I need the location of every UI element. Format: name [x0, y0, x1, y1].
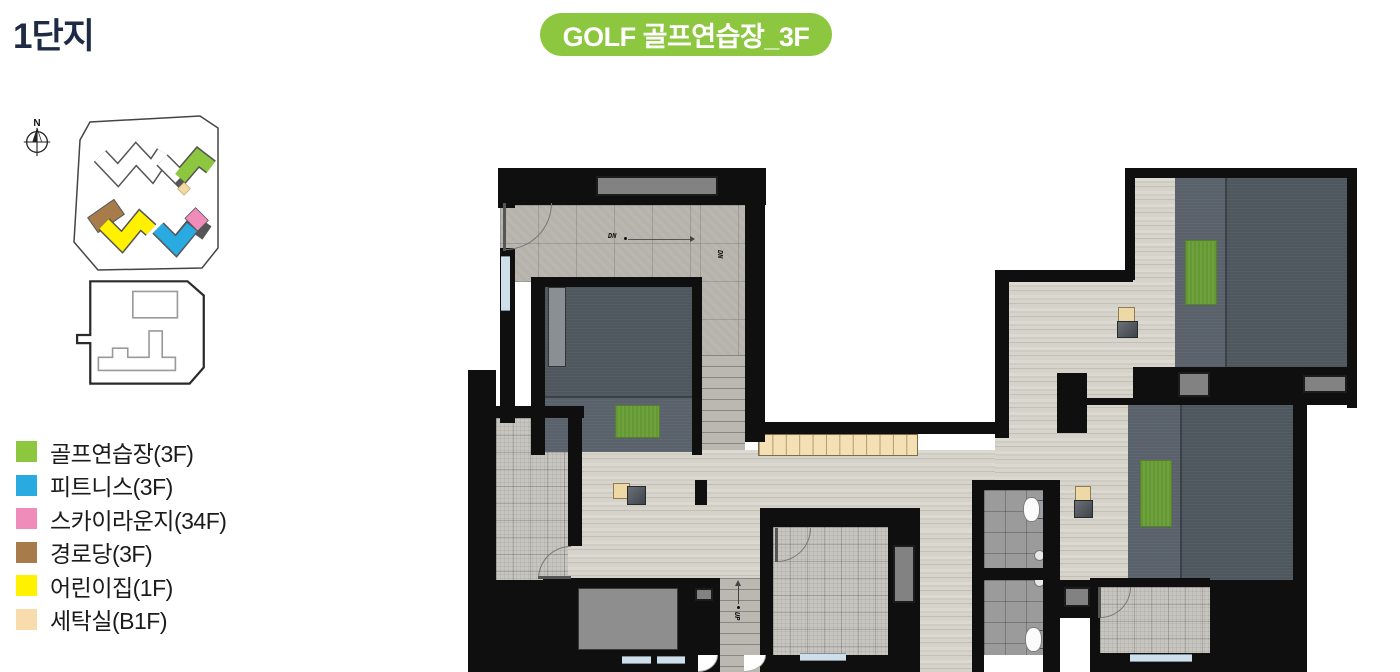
dn-dot [624, 237, 627, 240]
wall-segment [692, 277, 702, 455]
floor-wood-wing-strip [1133, 178, 1175, 370]
bench [627, 486, 646, 505]
glass-screen [548, 287, 566, 367]
legend-swatch [16, 609, 37, 630]
legend-label: 경로당(3F) [50, 535, 152, 569]
legend-item: 세탁실(B1F) [16, 609, 226, 630]
room-divider [545, 396, 700, 398]
bench [1117, 321, 1138, 338]
legend-swatch [16, 508, 37, 529]
legend-swatch [16, 441, 37, 462]
wall-segment [498, 168, 515, 208]
wall-segment [1090, 653, 1307, 672]
legend-label: 골프연습장(3F) [50, 435, 193, 469]
door-leaf [1098, 587, 1101, 618]
legend-label: 어린이집(1F) [50, 569, 173, 603]
elevator-cab [578, 588, 678, 650]
wall-stub [695, 480, 707, 505]
floor-wood-bottom-corridor [920, 530, 972, 672]
key-plan [70, 276, 222, 395]
site-map-drawing [52, 112, 234, 280]
glazing [501, 256, 510, 311]
room-divider [1225, 178, 1227, 368]
door-leaf [503, 203, 506, 251]
compass-icon [21, 126, 53, 158]
door-leaf [538, 576, 571, 579]
bench-seat [1075, 486, 1091, 501]
legend-swatch [16, 542, 37, 563]
wall-segment [531, 277, 701, 287]
toilet [1023, 497, 1040, 522]
legend-item: 스카이라운지(34F) [16, 508, 226, 529]
glazing [800, 653, 846, 661]
up-label: UP [733, 612, 740, 620]
legend-item: 골프연습장(3F) [16, 441, 226, 462]
legend-item: 피트니스(3F) [16, 475, 226, 496]
wall-segment [1043, 480, 1060, 572]
window [893, 545, 915, 603]
golf-mat [615, 405, 660, 438]
dn-arrow-line [628, 239, 690, 240]
legend-item: 어린이집(1F) [16, 575, 226, 596]
legend-label: 세탁실(B1F) [50, 602, 167, 636]
legend-label: 스카이라운지(34F) [50, 502, 226, 536]
legend: 골프연습장(3F) 피트니스(3F) 스카이라운지(34F) 경로당(3F) 어… [16, 441, 226, 642]
legend-swatch [16, 475, 37, 496]
wall-segment [773, 508, 888, 527]
key-plan-drawing [70, 276, 222, 390]
up-arrow-line [738, 586, 739, 604]
locker-row [758, 434, 918, 456]
golf-mat [1185, 240, 1217, 305]
toilet [1025, 627, 1042, 652]
window [1064, 587, 1090, 607]
wall-segment [1210, 580, 1307, 653]
legend-swatch [16, 575, 37, 596]
wall-segment [995, 270, 1133, 282]
up-dot [737, 606, 740, 609]
wall-segment [1125, 168, 1357, 178]
wall-segment [1043, 576, 1060, 672]
bench [1074, 500, 1093, 518]
wall-segment [1100, 578, 1210, 587]
compass: N [20, 118, 54, 163]
page-title: 1단지 [13, 8, 94, 59]
floor-plan: DN DN UP [468, 150, 1400, 672]
wall-segment [745, 168, 765, 442]
legend-item: 경로당(3F) [16, 542, 226, 563]
wall-segment [760, 508, 773, 672]
window [1303, 375, 1347, 393]
wall-segment [995, 270, 1009, 438]
glazing [1130, 654, 1192, 662]
wall-segment [1087, 398, 1293, 405]
golf-mat [1140, 460, 1172, 527]
floor-badge: GOLF 골프연습장_3F [540, 13, 832, 56]
wall-pillar [1057, 373, 1087, 433]
site-map [52, 112, 234, 285]
wall-segment [531, 277, 545, 455]
wall-segment [481, 580, 543, 672]
window [1178, 372, 1210, 397]
dn-arrow-head [690, 236, 695, 242]
wall-segment [1125, 168, 1135, 280]
window [596, 176, 718, 196]
shaft-window [695, 588, 713, 601]
dn-label-vertical: DN [716, 250, 723, 258]
wall-segment [568, 406, 582, 546]
glazing [622, 656, 651, 664]
legend-label: 피트니스(3F) [50, 468, 173, 502]
room-divider [1180, 405, 1182, 580]
dn-label: DN [608, 233, 616, 240]
glazing [657, 656, 685, 664]
door-leaf [775, 528, 778, 562]
wall-segment [758, 422, 996, 434]
